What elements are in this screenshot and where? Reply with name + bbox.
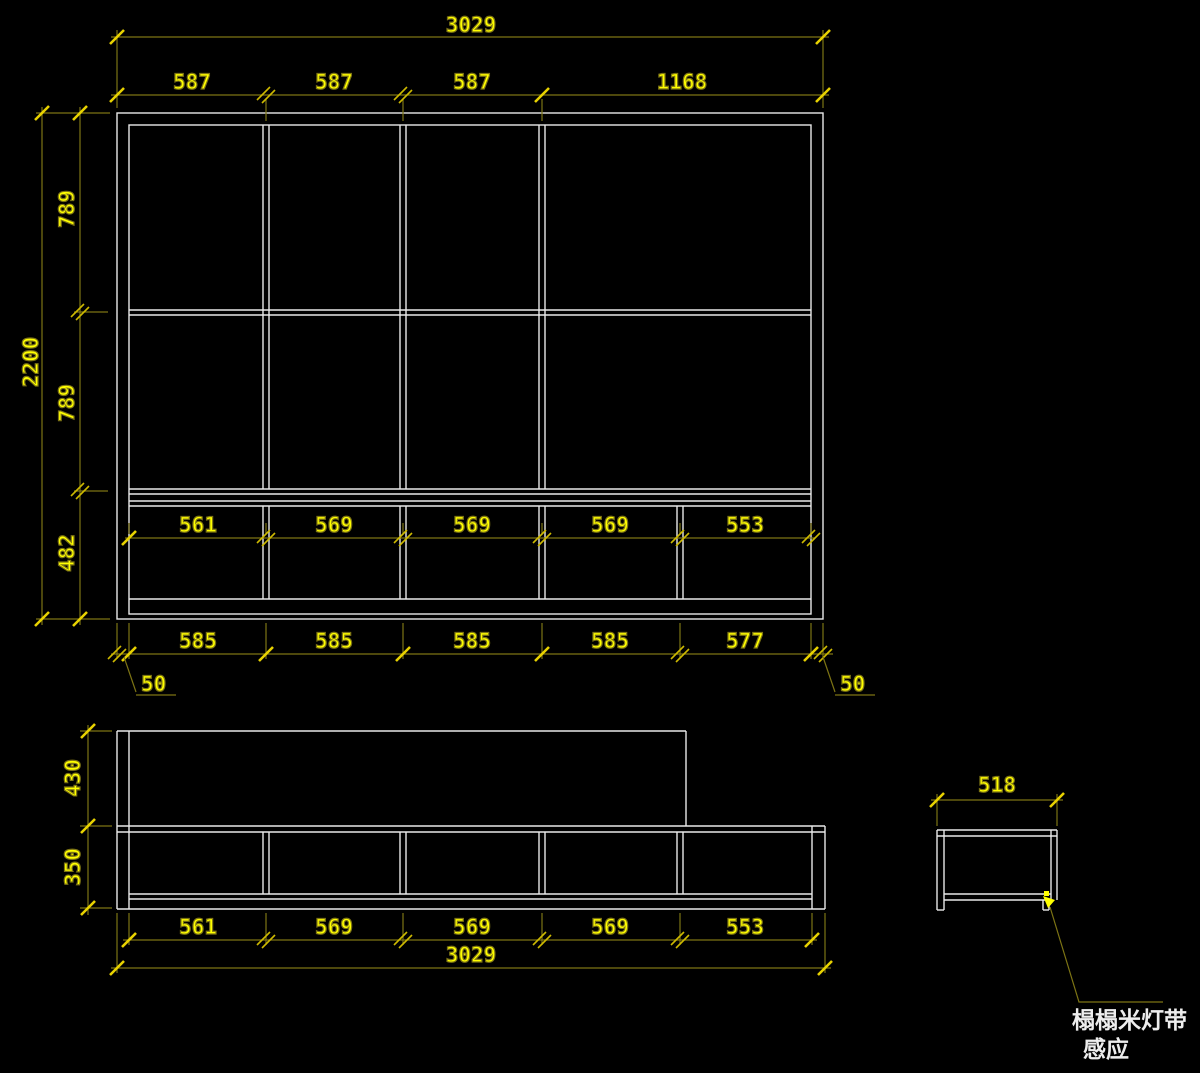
dim-text-left-panel-50: 50	[141, 672, 166, 696]
dim-text-cell-4: 569	[591, 915, 629, 939]
dim-text-pitch-1: 585	[179, 629, 217, 653]
dim-text-column-4: 1168	[657, 70, 708, 94]
dim-text-drawer-2: 569	[315, 513, 353, 537]
dim-text-cell-1: 561	[179, 915, 217, 939]
dim-text-cell-3: 569	[453, 915, 491, 939]
dim-text-row-3: 482	[55, 534, 79, 572]
dim-text-row-1: 789	[55, 190, 79, 228]
dim-text-cabinet-overall-height: 2200	[19, 337, 43, 388]
dim-text-column-2: 587	[315, 70, 353, 94]
cad-drawing-svg: 3029 587 587 587 1168 2200	[0, 0, 1200, 1073]
annotation-text-line1: 榻榻米灯带	[1072, 1007, 1187, 1034]
dim-text-pitch-3: 585	[453, 629, 491, 653]
cad-drawing-canvas: 3029 587 587 587 1168 2200	[0, 0, 1200, 1073]
dim-text-column-1: 587	[173, 70, 211, 94]
dim-text-base-height: 350	[61, 848, 85, 886]
dim-text-cell-5: 553	[726, 915, 764, 939]
dim-text-drawer-3: 569	[453, 513, 491, 537]
dim-text-drawer-5: 553	[726, 513, 764, 537]
dim-text-pitch-4: 585	[591, 629, 629, 653]
dim-text-pitch-5: 577	[726, 629, 764, 653]
dim-text-section-depth: 518	[978, 773, 1016, 797]
light-strip-marker-dot	[1044, 891, 1049, 896]
dim-text-platform-overall-width: 3029	[446, 943, 497, 967]
dim-text-pitch-2: 585	[315, 629, 353, 653]
dim-text-row-2: 789	[55, 384, 79, 422]
dim-text-drawer-4: 569	[591, 513, 629, 537]
annotation-text-line2: 感应	[1083, 1036, 1129, 1063]
dim-text-drawer-1: 561	[179, 513, 217, 537]
dim-text-column-3: 587	[453, 70, 491, 94]
dim-text-cabinet-overall-width: 3029	[446, 13, 497, 37]
dim-text-upper-height: 430	[61, 759, 85, 797]
dim-text-cell-2: 569	[315, 915, 353, 939]
dim-text-right-panel-50: 50	[840, 672, 865, 696]
